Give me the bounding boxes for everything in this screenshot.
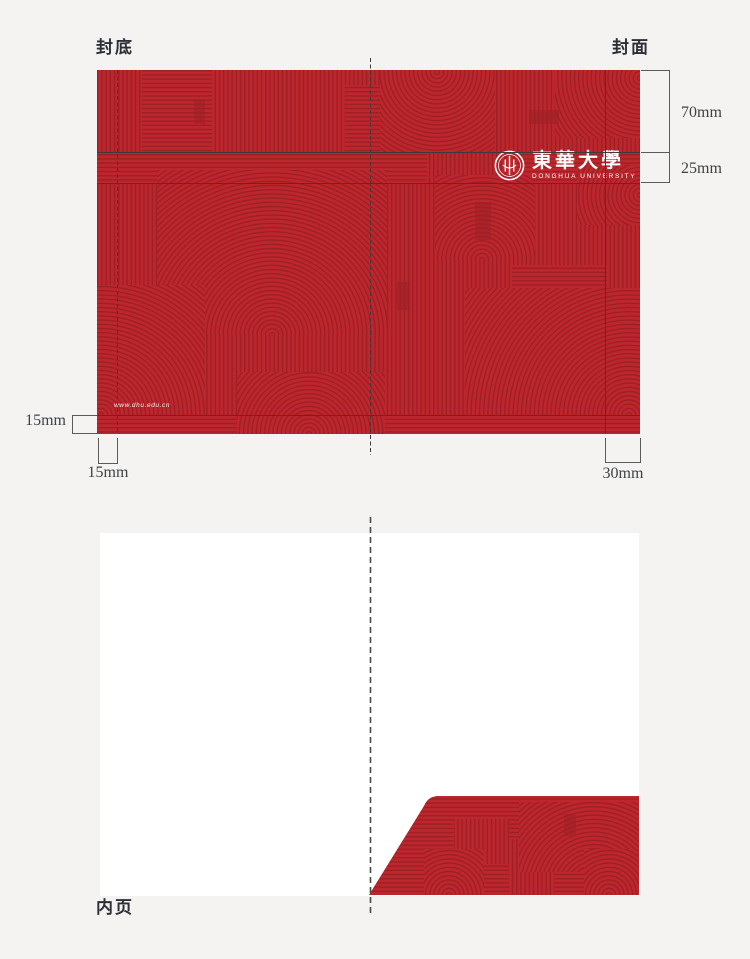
donghua-university-logo: 東華大學 DONGHUA UNIVERSITY	[493, 149, 636, 182]
dimension-30mm-right-margin: 30mm	[600, 466, 646, 482]
left-dimension-bracket	[73, 416, 98, 434]
website-text: www.dhu.edu.cn	[114, 402, 170, 409]
dimension-15mm-bottom-margin: 15mm	[22, 413, 66, 429]
logo-wordmark: 東華大學 DONGHUA UNIVERSITY	[532, 151, 636, 180]
dimension-25mm: 25mm	[681, 161, 722, 177]
bottom-left-dimension-bracket	[99, 438, 118, 464]
folder-design-spec-sheet: 封底 封面 東華大學 DONGHUA UNIVERSITY www.dhu.ed…	[0, 0, 750, 959]
dimension-15mm-left-margin: 15mm	[85, 465, 131, 481]
front-cover-label: 封面	[612, 39, 650, 56]
inner-pocket-pattern	[369, 794, 639, 896]
inner-page-label: 内页	[96, 899, 134, 916]
donghua-seal-icon	[493, 149, 526, 182]
right-dimension-bracket	[641, 71, 670, 183]
dimension-70mm: 70mm	[681, 105, 722, 121]
bottom-right-dimension-bracket	[606, 438, 641, 463]
logo-chinese-name: 東華大學	[532, 151, 636, 171]
logo-english-name: DONGHUA UNIVERSITY	[532, 174, 636, 181]
cover-spread-pattern	[97, 70, 640, 434]
back-cover-label: 封底	[96, 39, 134, 56]
